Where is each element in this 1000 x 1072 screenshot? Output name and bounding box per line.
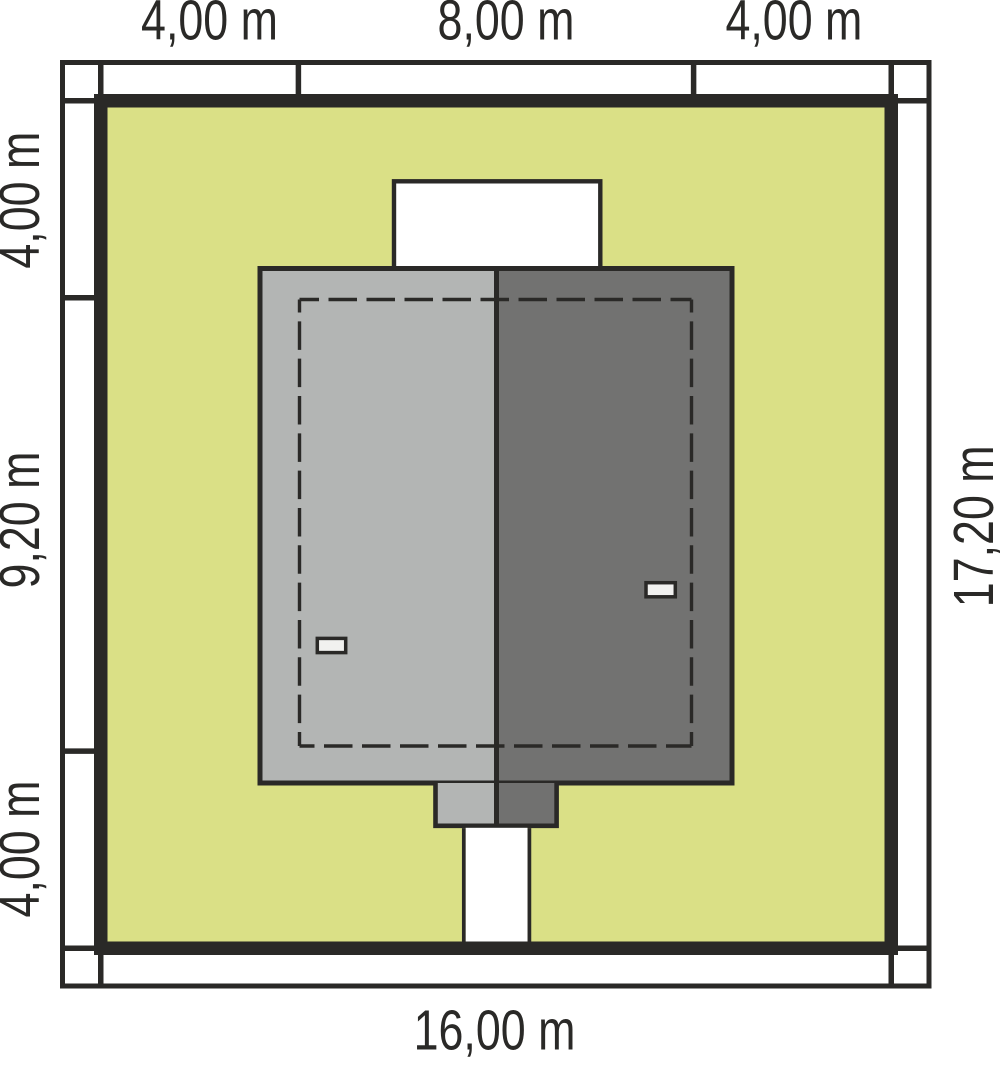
svg-text:4,00 m: 4,00 m bbox=[141, 0, 278, 52]
svg-text:4,00 m: 4,00 m bbox=[725, 0, 862, 52]
svg-text:9,20 m: 9,20 m bbox=[0, 452, 51, 589]
svg-text:16,00 m: 16,00 m bbox=[414, 998, 576, 1061]
svg-text:8,00 m: 8,00 m bbox=[438, 0, 575, 52]
svg-text:17,20 m: 17,20 m bbox=[942, 445, 1000, 607]
svg-text:4,00 m: 4,00 m bbox=[0, 781, 51, 918]
svg-text:4,00 m: 4,00 m bbox=[0, 132, 51, 269]
